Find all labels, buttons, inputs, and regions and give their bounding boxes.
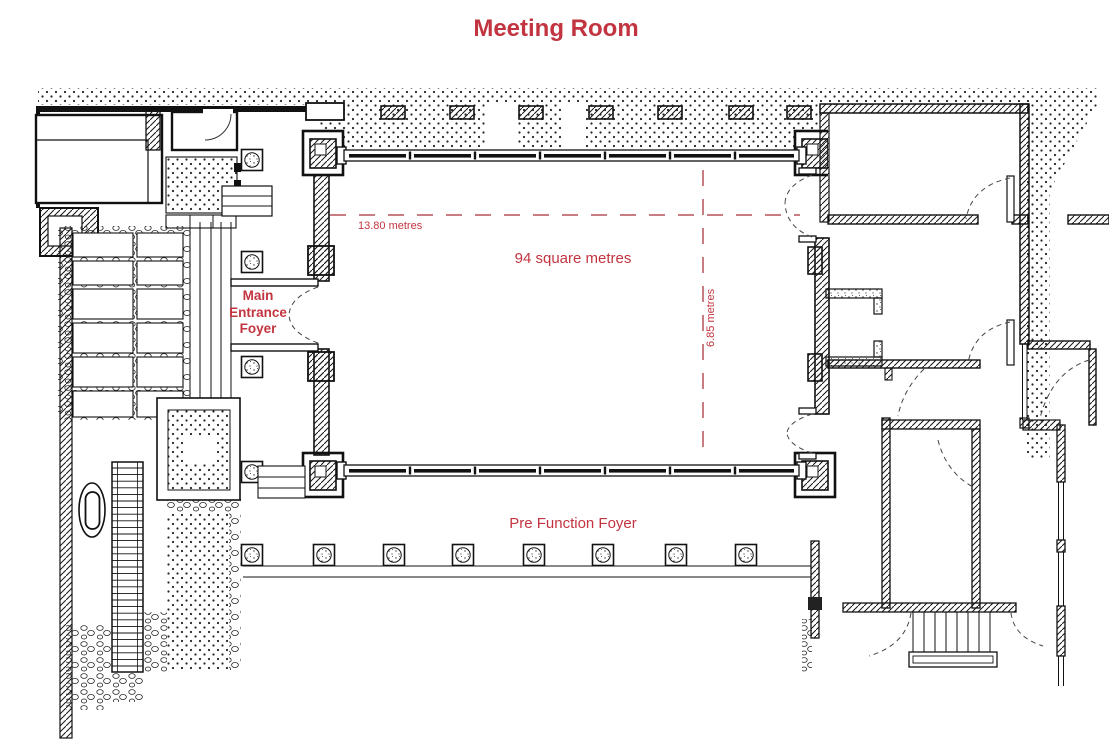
door-arc: [968, 322, 1010, 363]
wall-block: [808, 597, 822, 610]
column-marker: [593, 545, 614, 566]
planter-box: [157, 398, 240, 500]
pebble-strip: [802, 619, 812, 673]
paving-grid: [58, 226, 192, 420]
door-arc: [785, 175, 812, 203]
stair-room: [843, 418, 1043, 667]
door-arc: [1011, 613, 1043, 646]
meeting-room: [231, 131, 882, 497]
foyer-end-wall: [811, 541, 819, 638]
column-marker: [384, 545, 405, 566]
stair-landing: [909, 652, 997, 667]
window-wall-top: [337, 147, 806, 164]
door-arc: [869, 613, 911, 656]
wall-pier: [146, 110, 160, 150]
garden-path: [167, 512, 229, 670]
column-marker: [524, 545, 545, 566]
column-marker: [666, 545, 687, 566]
double-door-east-north: [785, 168, 816, 242]
svg-text:Main: Main: [243, 288, 274, 303]
west-wall: [820, 113, 829, 222]
column-marker: [314, 545, 335, 566]
door-leaf: [1007, 176, 1014, 222]
walkway-lines: [190, 222, 231, 398]
depth-dimension-label: 6.85 metres: [705, 288, 717, 347]
door-arc: [787, 414, 812, 433]
column-marker: [242, 357, 263, 378]
room-area-label: 94 square metres: [515, 250, 632, 267]
column-marker: [453, 545, 474, 566]
water-feature: [36, 115, 162, 203]
column-marker: [242, 545, 263, 566]
main-entrance-foyer-label: Main Entrance Foyer: [229, 288, 287, 336]
door-arc: [938, 440, 973, 487]
svg-text:Entrance: Entrance: [229, 305, 287, 320]
double-door-east-south: [787, 408, 816, 459]
door-arc: [898, 369, 924, 416]
small-room: [172, 109, 237, 150]
door-arc: [787, 433, 812, 453]
wing-wall-stub: [1068, 215, 1109, 224]
left-wall: [308, 175, 334, 455]
north-wall: [820, 104, 1028, 113]
column-marker: [242, 252, 263, 273]
column-marker: [242, 150, 263, 171]
far-right-south-wall: [1057, 425, 1065, 686]
left-wing: [36, 103, 344, 738]
width-dimension-label: 13.80 metres: [358, 220, 423, 232]
stairs-down: [913, 612, 990, 653]
door-arc: [289, 287, 318, 315]
pre-function-foyer-label: Pre Function Foyer: [509, 515, 637, 532]
garden-tub: [79, 483, 105, 537]
service-niche: [826, 289, 882, 366]
floor-plan-page: Meeting Room 13.80 metres 6.85 metres 94…: [0, 0, 1109, 740]
door-arc: [785, 203, 812, 237]
window-wall-bottom: [337, 462, 806, 479]
interior-wall-mid: [828, 320, 1014, 416]
right-wall: [808, 238, 829, 414]
wall-end-cap: [306, 103, 344, 120]
foyer-steps: [258, 466, 305, 498]
right-wing: [820, 104, 1109, 686]
floor-plan-canvas: Meeting Room 13.80 metres 6.85 metres 94…: [0, 0, 1109, 740]
door-arc: [289, 315, 318, 343]
column-marker: [736, 545, 757, 566]
svg-text:Foyer: Foyer: [240, 321, 278, 336]
door-leaf: [1007, 320, 1014, 365]
long-staircase: [112, 462, 143, 672]
page-title: Meeting Room: [473, 15, 638, 42]
